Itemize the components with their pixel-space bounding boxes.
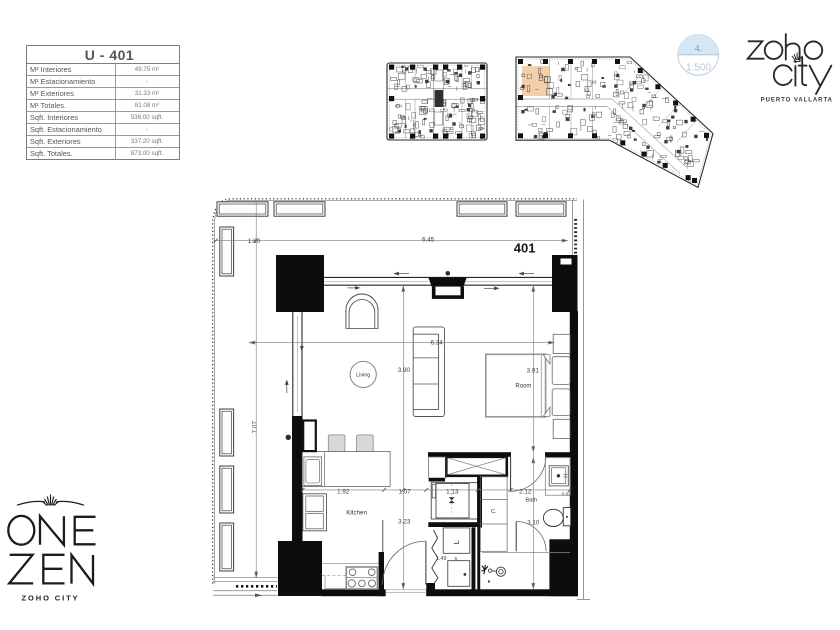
- svg-text:C.: C.: [491, 509, 497, 515]
- svg-text:1:500: 1:500: [686, 63, 711, 74]
- svg-text:ZOHO CITY: ZOHO CITY: [22, 594, 80, 603]
- svg-text:1.07: 1.07: [398, 488, 411, 495]
- svg-text:1.49: 1.49: [436, 556, 447, 562]
- svg-text:PUERTO VALLARTA: PUERTO VALLARTA: [761, 98, 833, 104]
- svg-text:3.23: 3.23: [398, 519, 411, 526]
- svg-text:1.13: 1.13: [446, 488, 459, 495]
- svg-text:3.91: 3.91: [527, 368, 540, 375]
- svg-text:Kitchen: Kitchen: [346, 510, 367, 517]
- svg-text:4.: 4.: [695, 44, 703, 54]
- svg-text:6.45: 6.45: [422, 236, 435, 243]
- svg-text:1.92: 1.92: [337, 488, 350, 495]
- svg-text:7.07: 7.07: [252, 421, 259, 434]
- svg-text:Room: Room: [515, 383, 531, 389]
- svg-text:3.90: 3.90: [398, 367, 411, 374]
- svg-text:0.52: 0.52: [562, 492, 572, 497]
- svg-text:3.10: 3.10: [527, 520, 540, 527]
- svg-text:Bath: Bath: [525, 497, 537, 503]
- svg-text:1.80: 1.80: [248, 238, 261, 245]
- svg-text:Living: Living: [356, 373, 370, 379]
- svg-text:5: 5: [454, 556, 457, 562]
- svg-text:2.12: 2.12: [519, 488, 532, 495]
- svg-text:401: 401: [514, 240, 536, 255]
- svg-text:6.34: 6.34: [430, 340, 443, 347]
